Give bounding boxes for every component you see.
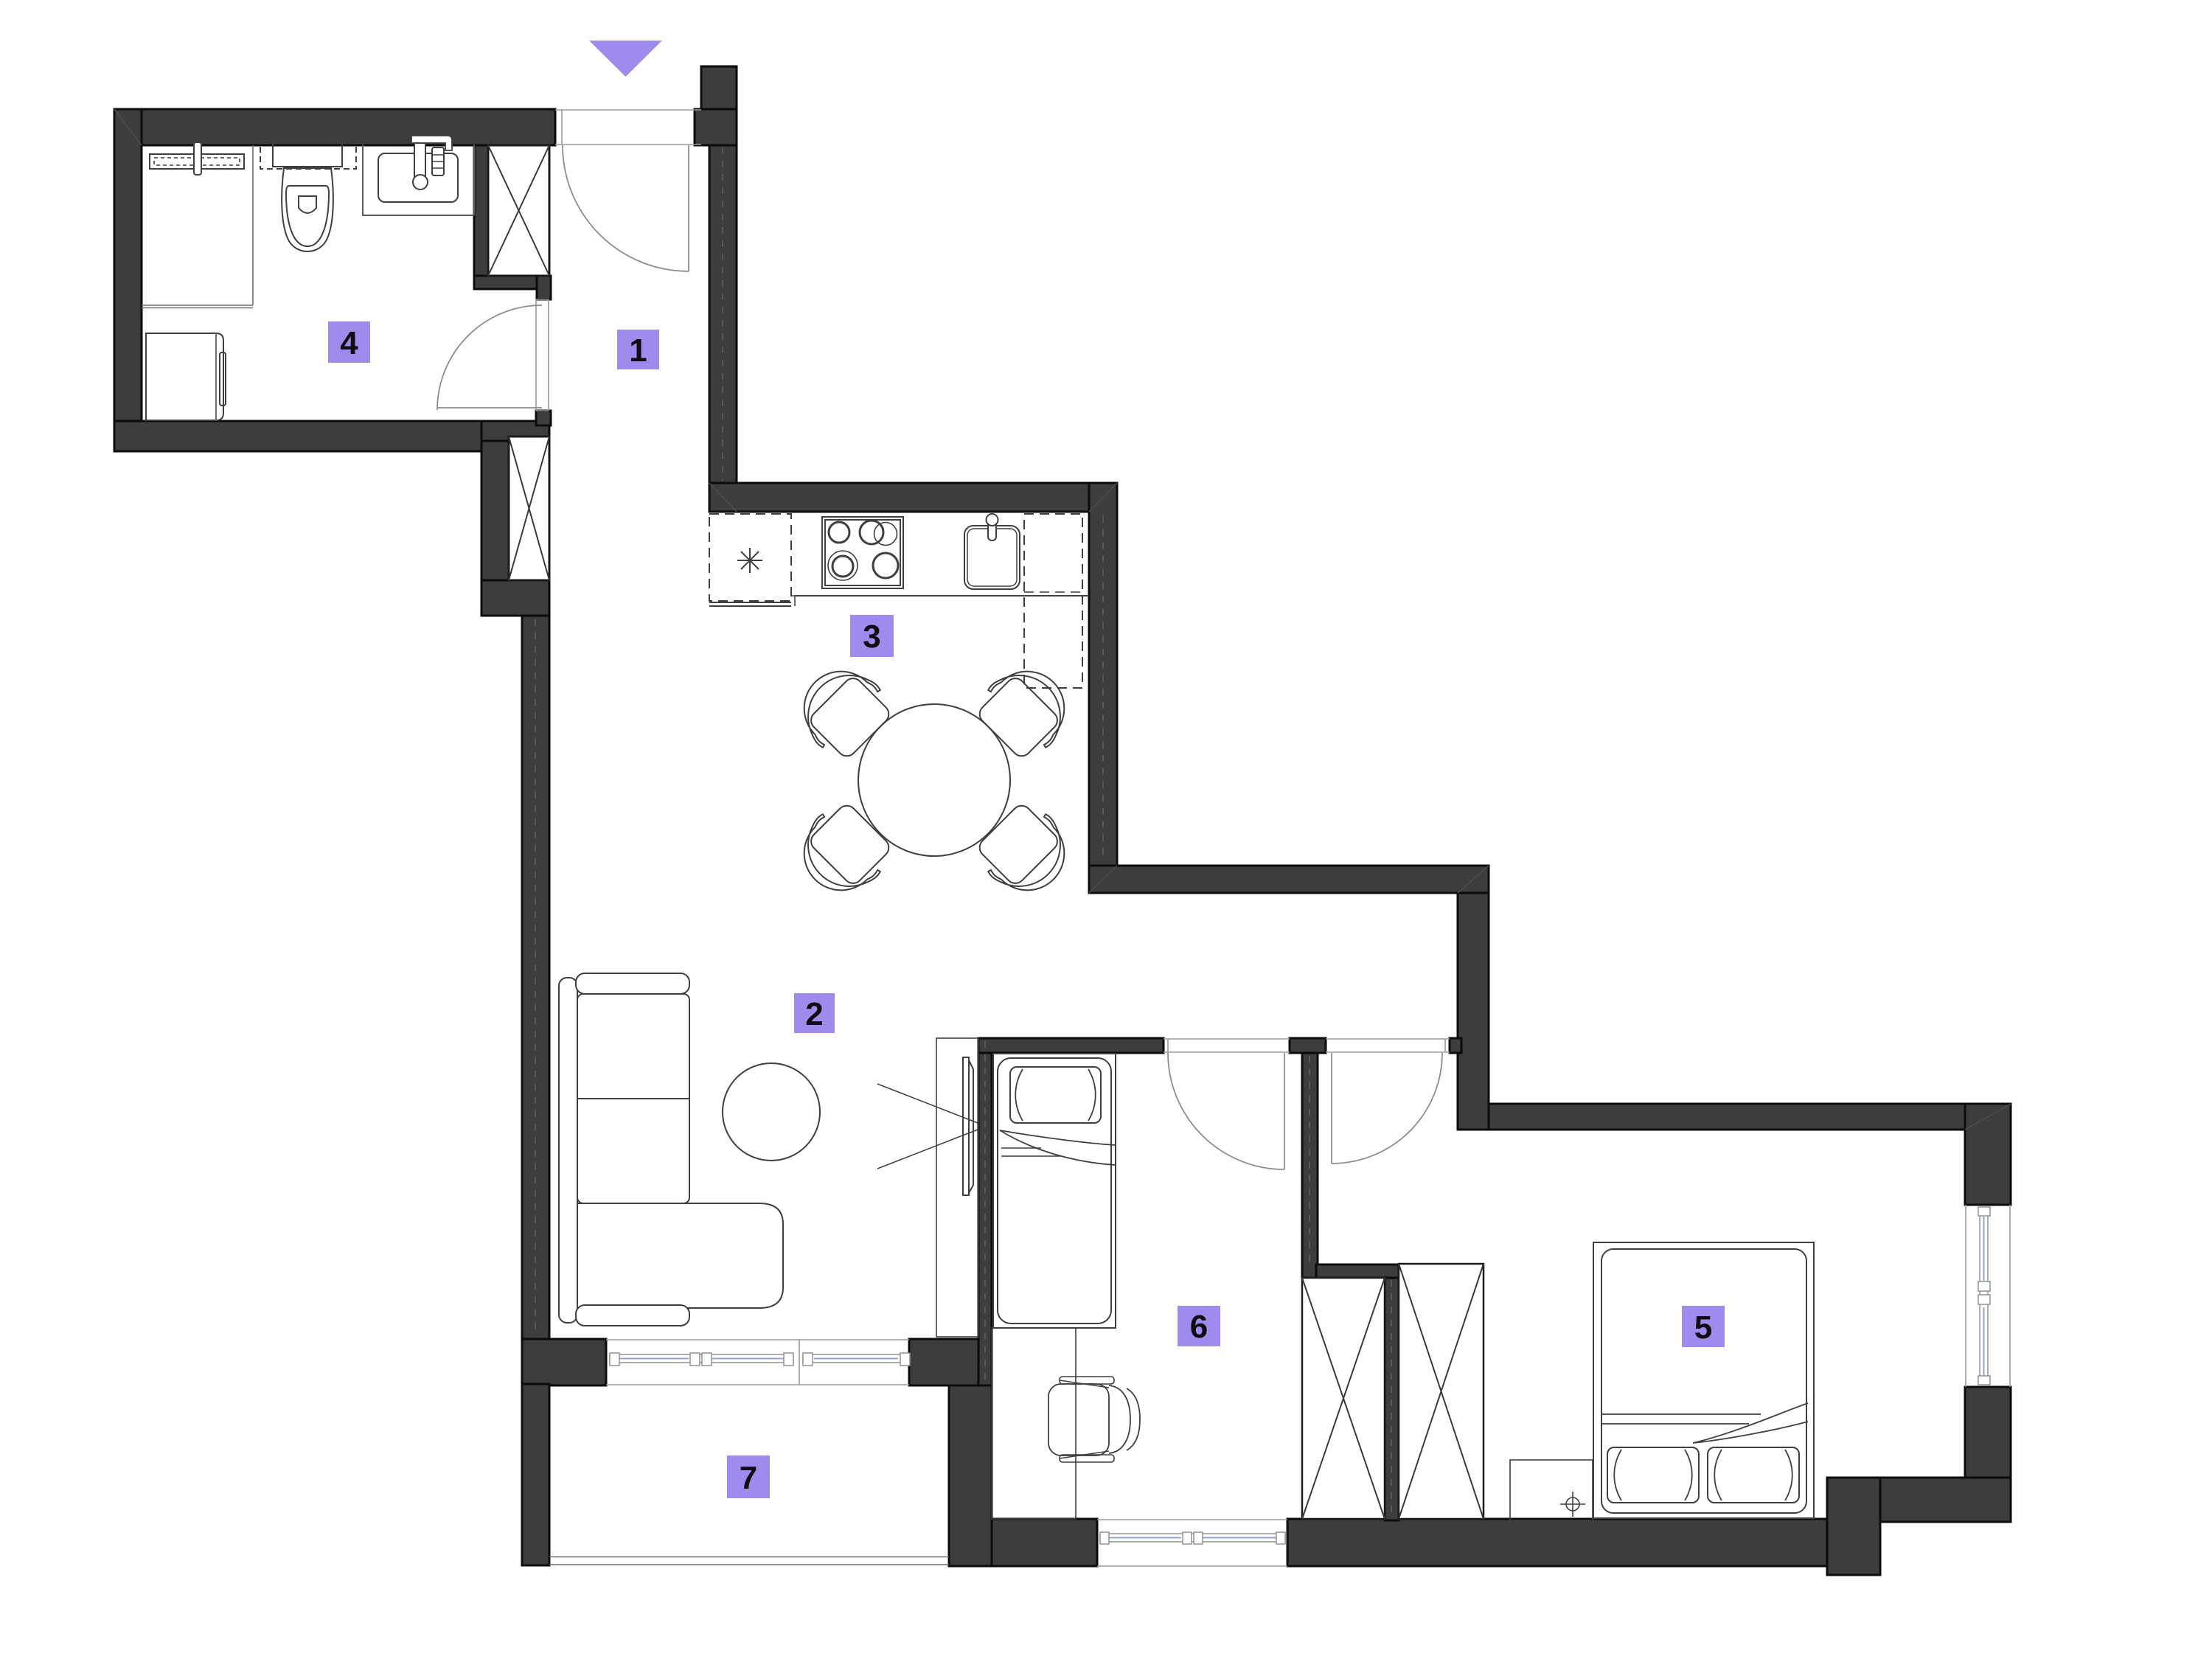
svg-text:2: 2 bbox=[805, 996, 823, 1032]
svg-text:1: 1 bbox=[629, 333, 647, 369]
svg-text:7: 7 bbox=[740, 1460, 757, 1496]
svg-text:6: 6 bbox=[1190, 1309, 1208, 1345]
svg-text:4: 4 bbox=[340, 325, 358, 361]
svg-text:3: 3 bbox=[863, 619, 880, 655]
svg-text:5: 5 bbox=[1694, 1310, 1712, 1346]
